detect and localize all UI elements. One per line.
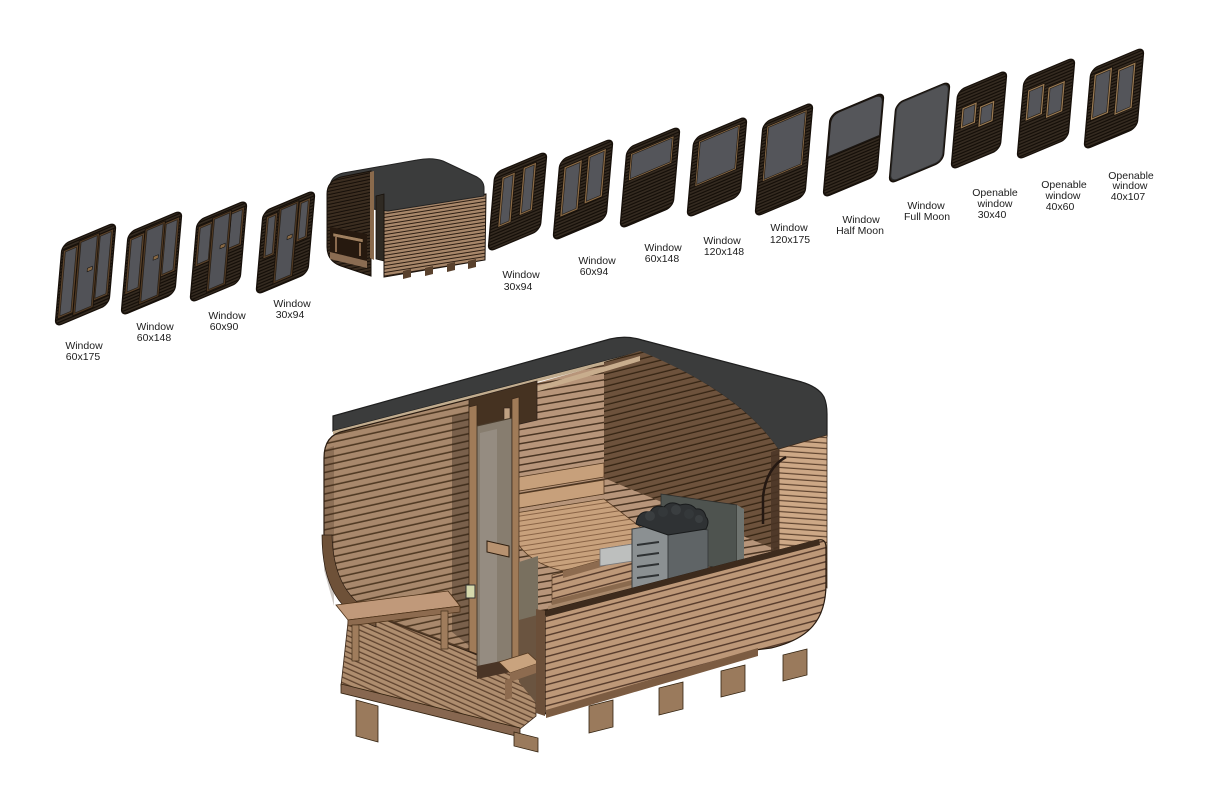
svg-text:30x40: 30x40 (978, 209, 1007, 221)
svg-text:60x94: 60x94 (580, 266, 609, 278)
svg-text:40x107: 40x107 (1111, 191, 1146, 203)
svg-text:120x148: 120x148 (704, 246, 744, 258)
svg-text:60x148: 60x148 (645, 253, 680, 265)
svg-text:40x60: 40x60 (1046, 201, 1075, 213)
svg-text:120x175: 120x175 (770, 234, 810, 246)
svg-text:60x148: 60x148 (137, 332, 172, 344)
svg-text:Window: Window (502, 269, 540, 281)
svg-text:Half Moon: Half Moon (836, 225, 884, 237)
svg-text:60x175: 60x175 (66, 351, 101, 363)
svg-text:30x94: 30x94 (276, 309, 305, 321)
svg-text:Full Moon: Full Moon (904, 211, 950, 223)
svg-text:60x90: 60x90 (210, 321, 239, 333)
svg-text:30x94: 30x94 (504, 281, 533, 293)
svg-text:Window: Window (770, 222, 808, 234)
